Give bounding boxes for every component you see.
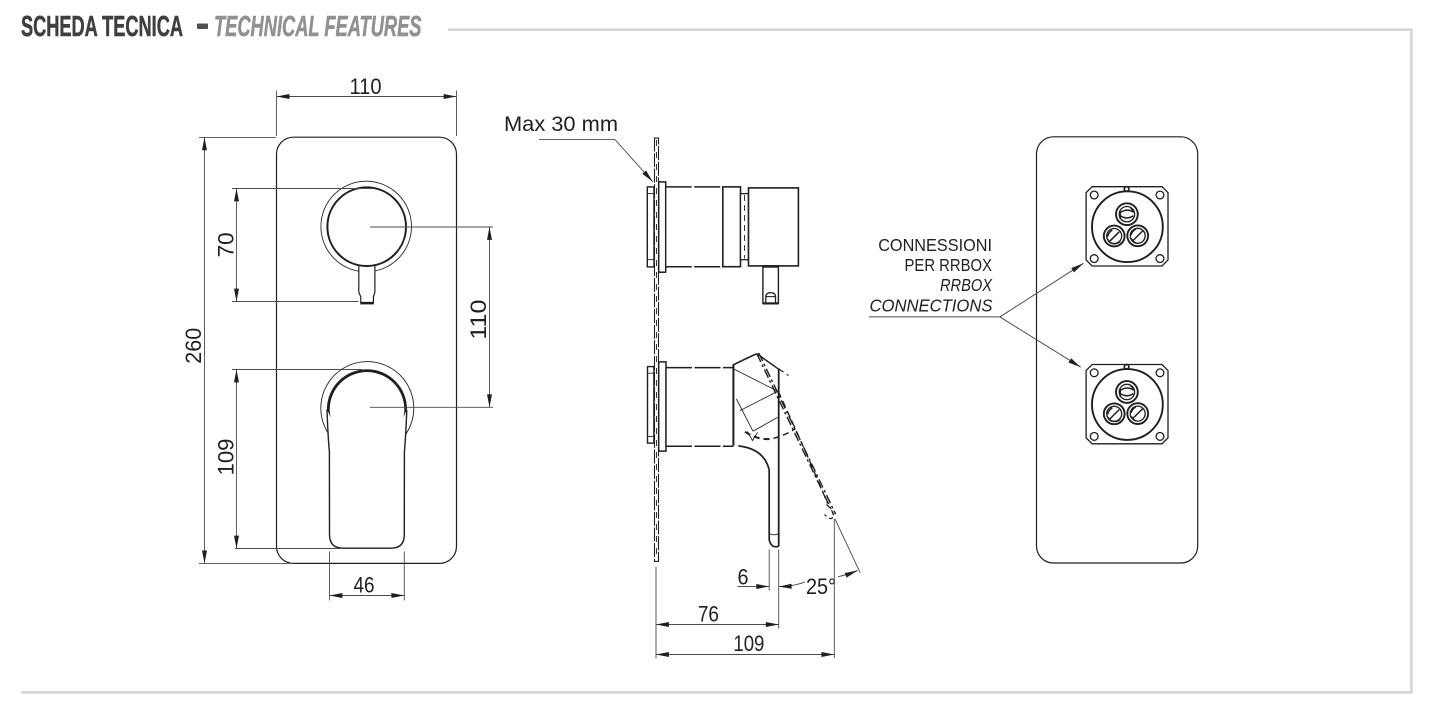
svg-text:110: 110: [350, 74, 382, 99]
svg-text:76: 76: [698, 602, 719, 627]
svg-text:6: 6: [738, 565, 749, 590]
svg-text:CONNECTIONS: CONNECTIONS: [870, 296, 993, 316]
svg-text:260: 260: [181, 328, 206, 364]
svg-text:Max 30 mm: Max 30 mm: [504, 113, 618, 136]
svg-text:SCHEDA TECNICA: SCHEDA TECNICA: [21, 11, 183, 43]
svg-text:TECHNICAL FEATURES: TECHNICAL FEATURES: [214, 11, 422, 43]
svg-text:PER RRBOX: PER RRBOX: [905, 255, 993, 275]
svg-text:110: 110: [466, 300, 491, 340]
svg-text:25°: 25°: [806, 574, 836, 599]
svg-text:CONNESSIONI: CONNESSIONI: [878, 235, 992, 255]
svg-text:46: 46: [354, 573, 375, 598]
svg-text:RRBOX: RRBOX: [940, 275, 993, 295]
svg-text:109: 109: [733, 631, 764, 656]
svg-text:109: 109: [214, 439, 239, 476]
svg-text:70: 70: [214, 232, 239, 257]
